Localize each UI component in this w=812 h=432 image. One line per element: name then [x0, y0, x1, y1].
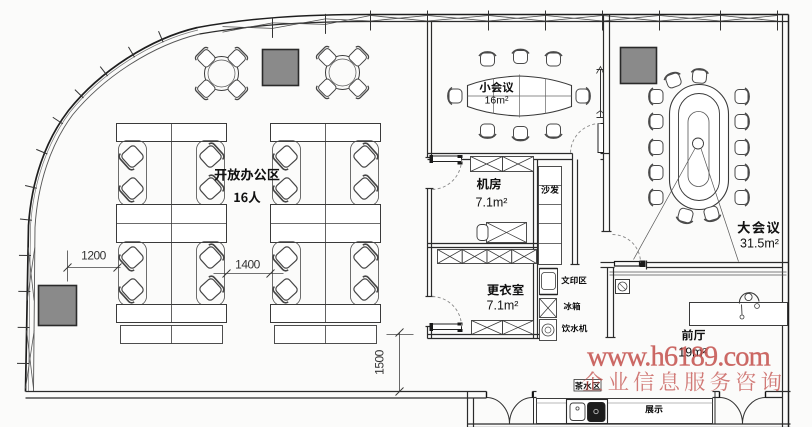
svg-text:www.h6189.com: www.h6189.com: [587, 342, 770, 373]
svg-text:1200: 1200: [81, 249, 107, 263]
svg-text:1400: 1400: [235, 258, 261, 272]
svg-text:1500: 1500: [373, 349, 387, 375]
svg-text:7.1m²: 7.1m²: [487, 299, 519, 313]
svg-text:31.5m²: 31.5m²: [740, 237, 779, 251]
svg-text:7.1m²: 7.1m²: [476, 196, 508, 210]
svg-text:16m²: 16m²: [485, 95, 509, 107]
